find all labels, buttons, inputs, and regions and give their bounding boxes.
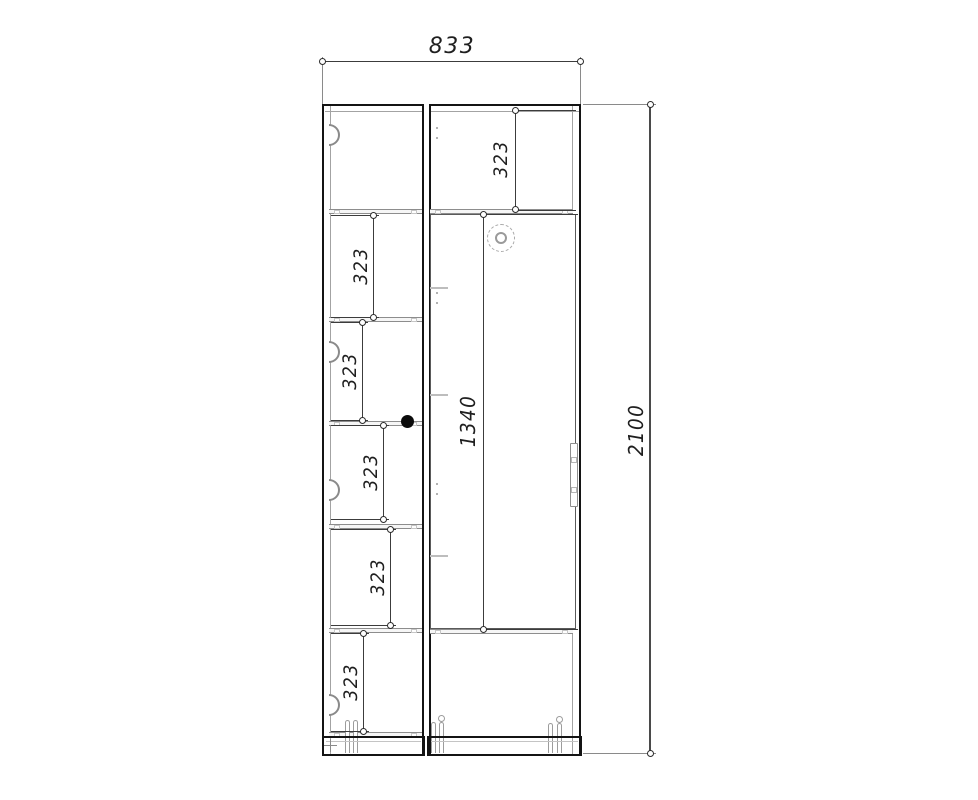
handle-screw-icon <box>571 457 577 463</box>
leg-cap-icon <box>438 715 445 722</box>
dim-arrow-icon <box>370 212 377 219</box>
shelf-pin-icon <box>411 318 417 322</box>
dim-label-width: 833 <box>416 33 488 61</box>
pin-hole-mark <box>430 555 448 557</box>
dim-arrow-icon <box>360 728 367 735</box>
door-handle <box>570 443 578 507</box>
drill-dot <box>436 483 438 485</box>
shelf-pin-icon <box>562 630 568 634</box>
dim-arrow-icon <box>359 417 366 424</box>
dim-line <box>483 214 484 630</box>
dim-arrow-icon <box>370 314 377 321</box>
shelf-pin-icon <box>411 629 417 633</box>
plinth-left <box>322 736 425 756</box>
dim-arrow-icon <box>387 622 394 629</box>
dim-label-spacing: 323 <box>357 443 385 500</box>
cam-lock-inner-icon <box>495 232 507 244</box>
dim-tick <box>486 214 578 215</box>
dim-label-spacing: 323 <box>337 653 365 710</box>
dim-arrow-icon <box>387 526 394 533</box>
pin-hole-mark <box>430 394 448 396</box>
extension-line <box>583 753 656 754</box>
cross-mark-icon <box>330 739 331 752</box>
dim-label-door: 1340 <box>454 392 482 451</box>
leg-cap-icon <box>556 716 563 723</box>
dim-arrow-icon <box>359 319 366 326</box>
dim-tick <box>518 110 576 111</box>
dim-tick <box>486 629 578 630</box>
dim-arrow-icon <box>319 58 326 65</box>
dim-label-spacing: 323 <box>347 237 375 294</box>
knob <box>401 415 414 428</box>
drill-dot <box>436 493 438 495</box>
dim-label-spacing: 323 <box>487 130 515 187</box>
dim-label-height: 2100 <box>622 401 650 460</box>
shelf-pin-icon <box>435 630 441 634</box>
drill-dot <box>436 137 438 139</box>
drill-dot <box>436 127 438 129</box>
shelf-pin-icon <box>411 210 417 214</box>
dim-arrow-icon <box>512 107 519 114</box>
door-panel <box>430 214 576 629</box>
dim-arrow-icon <box>380 422 387 429</box>
dim-line <box>322 61 581 62</box>
dim-arrow-icon <box>647 101 654 108</box>
dim-label-spacing: 323 <box>364 548 392 605</box>
dim-arrow-icon <box>647 750 654 757</box>
handle-screw-icon <box>571 487 577 493</box>
shelf-pin-icon <box>334 210 340 214</box>
dim-arrow-icon <box>480 211 487 218</box>
pin-hole-mark <box>430 287 448 289</box>
drill-dot <box>436 302 438 304</box>
shelf-pin-icon <box>411 525 417 529</box>
dim-arrow-icon <box>380 516 387 523</box>
top-panel-inner-line <box>325 111 579 112</box>
dim-arrow-icon <box>360 630 367 637</box>
dim-label-spacing: 323 <box>336 342 364 399</box>
dim-line <box>515 110 516 210</box>
extension-line <box>583 104 656 105</box>
drawing-canvas: 833 2100 1340 323 323 <box>0 0 978 800</box>
dim-arrow-icon <box>480 626 487 633</box>
plinth-right <box>427 736 582 756</box>
dim-arrow-icon <box>512 206 519 213</box>
left-wall-inner-line <box>330 106 331 754</box>
drill-dot <box>436 292 438 294</box>
plinth-inner-line <box>431 741 578 742</box>
dim-arrow-icon <box>577 58 584 65</box>
plinth-inner-line <box>326 741 421 742</box>
dim-tick <box>518 210 576 211</box>
